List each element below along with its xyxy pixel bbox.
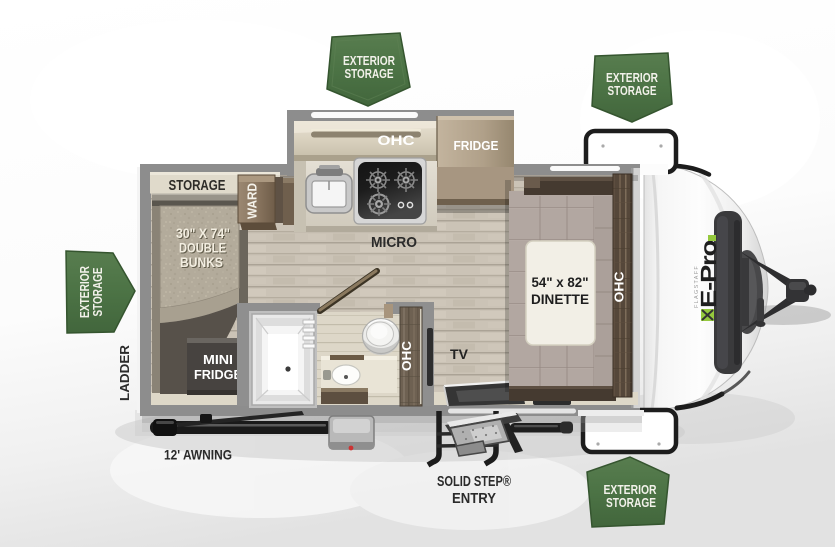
svg-text:STORAGE: STORAGE <box>606 496 656 510</box>
svg-text:OHC: OHC <box>612 271 627 303</box>
svg-text:STORAGE: STORAGE <box>608 84 657 98</box>
svg-text:STORAGE: STORAGE <box>345 67 394 81</box>
svg-text:MICRO: MICRO <box>371 234 417 251</box>
svg-text:FRIDGE: FRIDGE <box>194 368 242 382</box>
svg-text:STORAGE: STORAGE <box>169 178 226 194</box>
svg-text:EXTERIOR: EXTERIOR <box>606 71 658 85</box>
svg-text:OHC: OHC <box>378 133 415 148</box>
svg-text:EXTERIOR: EXTERIOR <box>78 266 92 318</box>
svg-text:EXTERIOR: EXTERIOR <box>604 483 657 497</box>
svg-text:TV: TV <box>450 346 469 362</box>
svg-text:LADDER: LADDER <box>117 344 132 401</box>
svg-text:EXTERIOR: EXTERIOR <box>343 54 395 68</box>
svg-text:MINI: MINI <box>203 353 233 367</box>
svg-text:54" x 82": 54" x 82" <box>532 275 589 290</box>
svg-text:DINETTE: DINETTE <box>531 292 589 307</box>
svg-text:OHC: OHC <box>399 340 414 371</box>
svg-text:12' AWNING: 12' AWNING <box>164 448 232 463</box>
svg-text:ENTRY: ENTRY <box>452 491 496 507</box>
svg-text:FLAGSTAFF: FLAGSTAFF <box>694 265 700 308</box>
svg-text:SOLID STEP®: SOLID STEP® <box>437 474 511 490</box>
svg-text:BUNKS: BUNKS <box>180 255 223 270</box>
svg-text:FRIDGE: FRIDGE <box>454 139 499 153</box>
svg-text:STORAGE: STORAGE <box>91 268 105 317</box>
svg-text:DOUBLE: DOUBLE <box>179 241 226 256</box>
svg-text:WARD: WARD <box>246 183 260 219</box>
svg-text:30" X 74": 30" X 74" <box>176 226 230 241</box>
